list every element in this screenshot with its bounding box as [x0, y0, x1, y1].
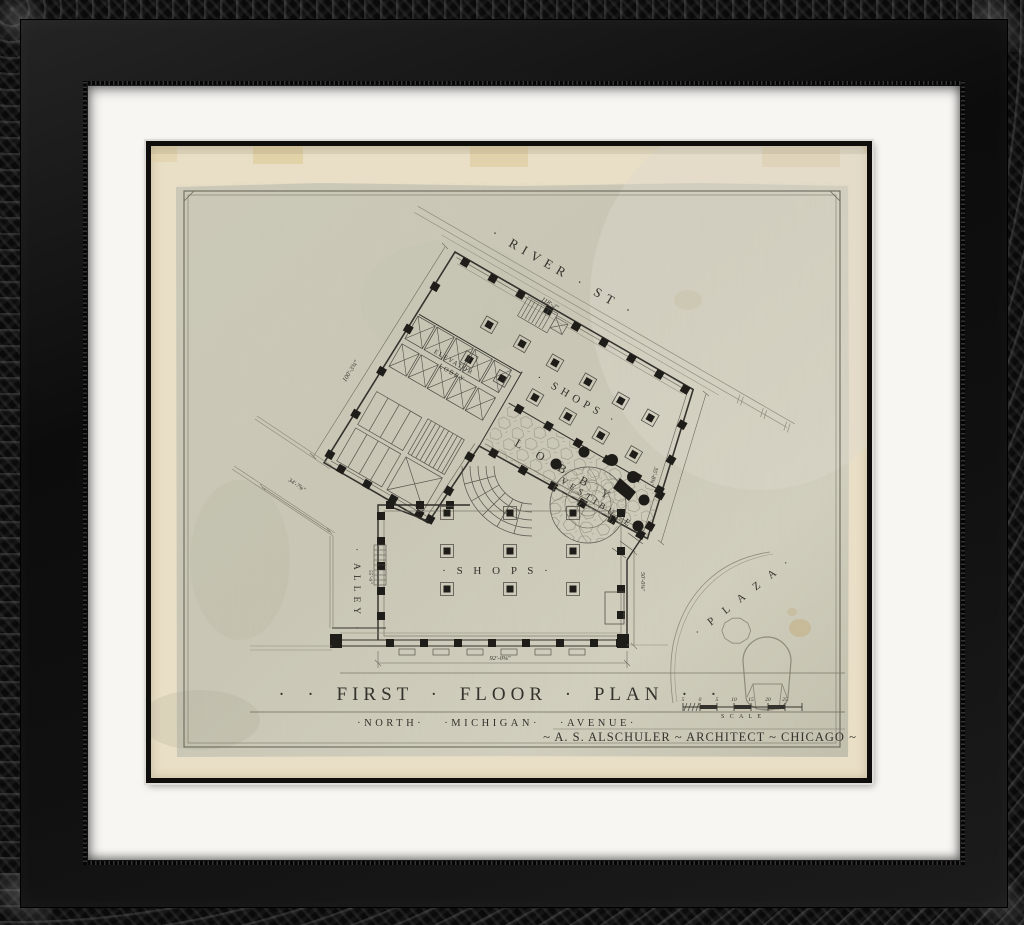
scale-number: 5: [682, 697, 685, 703]
label-shops-lower: · S H O P S ·: [442, 565, 552, 577]
dim-alley-depth: 55'-0": [367, 570, 373, 584]
scale-number: 20: [765, 697, 771, 703]
dim-michigan-frontage: 92'-0⅝": [490, 655, 511, 662]
scale-number: 15: [748, 697, 754, 703]
scale-number: 25: [782, 697, 788, 703]
frame-bead: [83, 81, 87, 865]
framed-floor-plan-photo: · RIVER · ST · 118'-2": [0, 0, 1024, 925]
frame-bead: [83, 81, 965, 85]
drawing-title: · · FIRST · FLOOR · PLAN · ·: [278, 684, 721, 705]
label-alley: · ALLEY ·: [351, 548, 361, 634]
scale-label: S C A L E: [721, 714, 763, 720]
dim-south-depth: 50'-0⅝": [639, 572, 645, 592]
scale-number: 10: [731, 697, 737, 703]
architect-credit: ~ A. S. ALSCHULER ~ ARCHITECT ~ CHICAGO …: [543, 730, 857, 744]
frame-bead: [83, 861, 965, 865]
label-avenue: ·NORTH· ·MICHIGAN· ·AVENUE·: [357, 718, 637, 729]
scale-number: 5: [716, 697, 719, 703]
drawing-sheet-svg: · RIVER · ST · 118'-2": [151, 146, 867, 778]
scale-number: 0: [699, 697, 702, 703]
inner-shadow: [151, 146, 867, 154]
frame-bead: [961, 81, 965, 865]
